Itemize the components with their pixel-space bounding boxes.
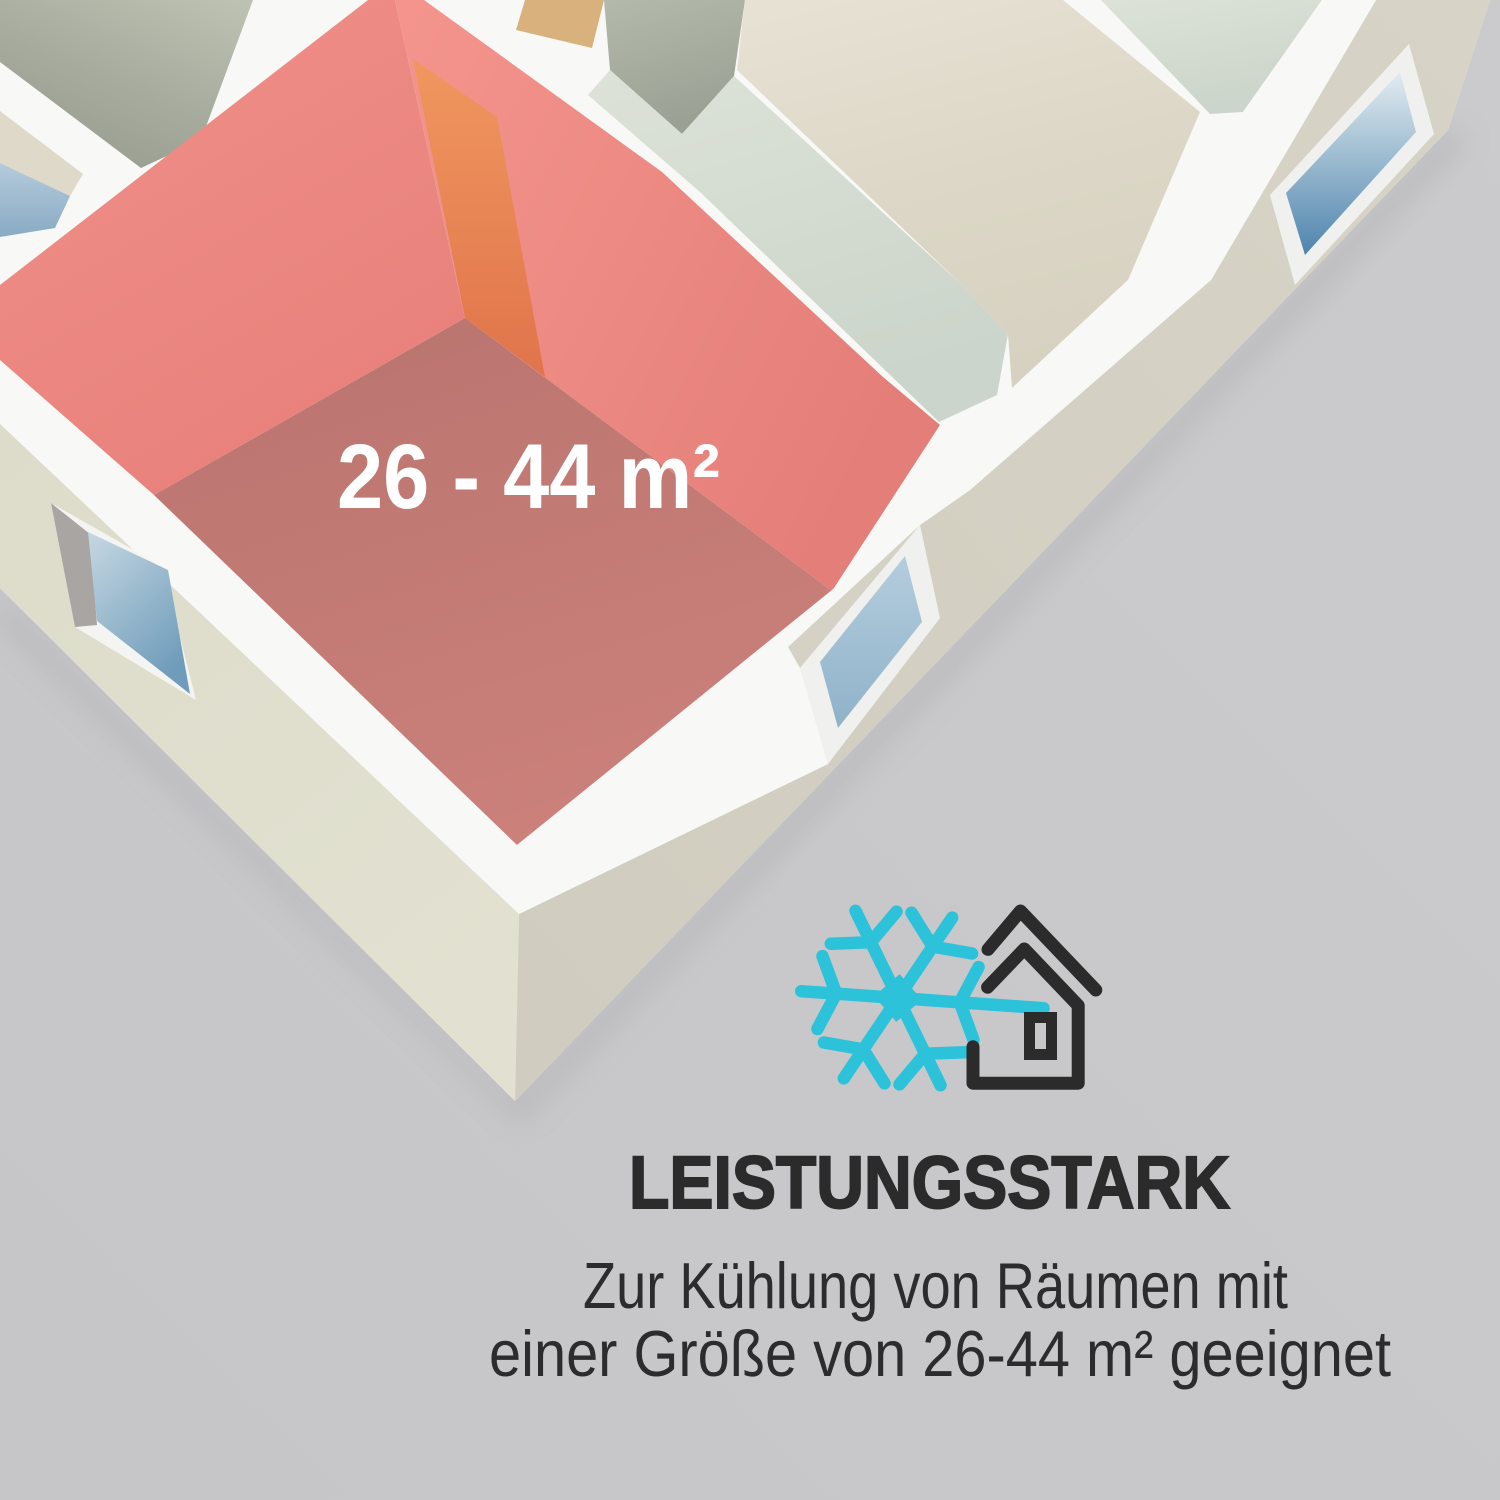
svg-text:einer Größe von 26-44 m² geeig: einer Größe von 26-44 m² geeignet [489, 1317, 1391, 1390]
svg-text:LEISTUNGSSTARK: LEISTUNGSSTARK [629, 1141, 1230, 1224]
svg-text:26 - 44 m²: 26 - 44 m² [337, 426, 720, 528]
svg-text:Zur Kühlung von Räumen mit: Zur Kühlung von Räumen mit [583, 1249, 1288, 1322]
